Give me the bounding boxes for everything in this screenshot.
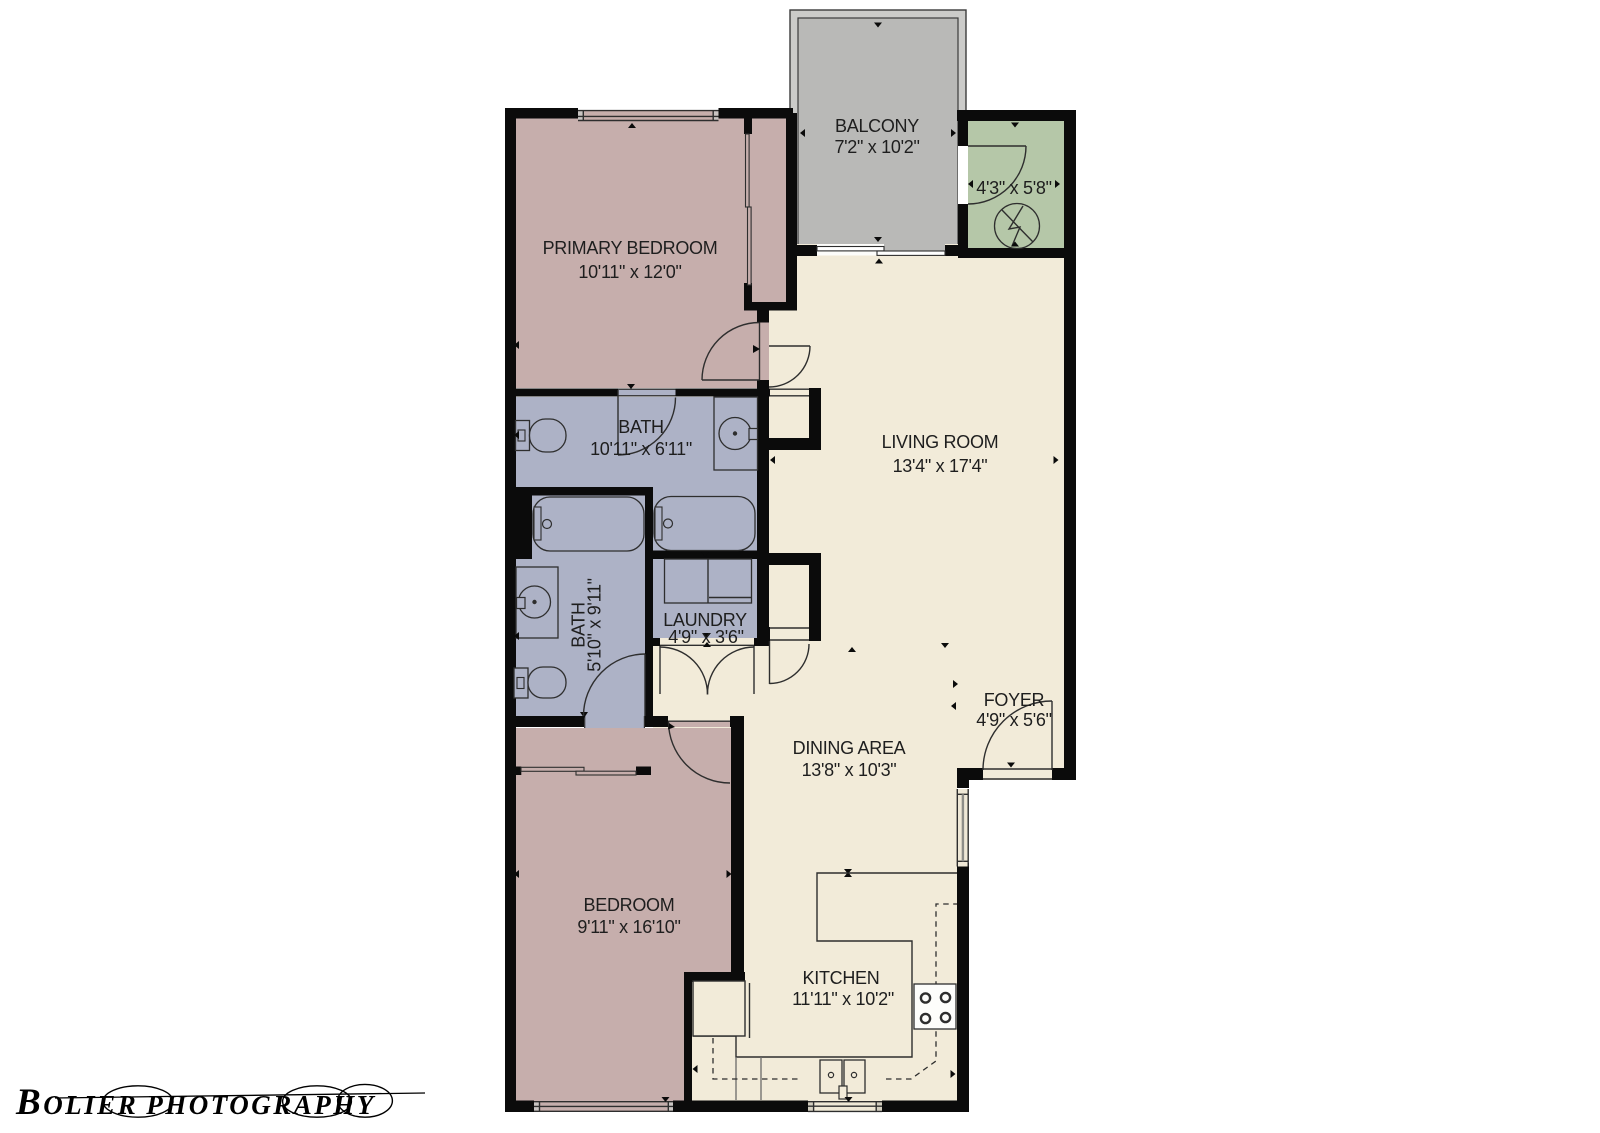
svg-text:PRIMARY BEDROOM: PRIMARY BEDROOM (543, 238, 718, 258)
svg-text:DINING AREA: DINING AREA (793, 738, 906, 758)
svg-text:4'9" x 3'6": 4'9" x 3'6" (668, 627, 743, 647)
svg-text:BATH: BATH (618, 417, 663, 437)
svg-text:4'3" x 5'8": 4'3" x 5'8" (976, 178, 1051, 198)
svg-text:10'11" x 6'11": 10'11" x 6'11" (590, 439, 692, 459)
svg-text:5'10" x 9'11": 5'10" x 9'11" (585, 578, 605, 671)
svg-text:9'11" x 16'10": 9'11" x 16'10" (577, 917, 680, 937)
svg-text:BALCONY: BALCONY (835, 116, 919, 136)
svg-text:4'9" x 5'6": 4'9" x 5'6" (976, 710, 1051, 730)
svg-text:13'8" x 10'3": 13'8" x 10'3" (802, 760, 897, 780)
svg-text:7'2" x 10'2": 7'2" x 10'2" (834, 137, 919, 157)
svg-text:BEDROOM: BEDROOM (584, 895, 675, 915)
svg-text:FOYER: FOYER (984, 690, 1045, 710)
svg-text:11'11" x 10'2": 11'11" x 10'2" (792, 989, 894, 1009)
svg-text:13'4" x 17'4": 13'4" x 17'4" (893, 456, 988, 476)
svg-text:LIVING ROOM: LIVING ROOM (882, 432, 999, 452)
svg-text:10'11" x 12'0": 10'11" x 12'0" (578, 262, 681, 282)
svg-text:KITCHEN: KITCHEN (803, 968, 880, 988)
